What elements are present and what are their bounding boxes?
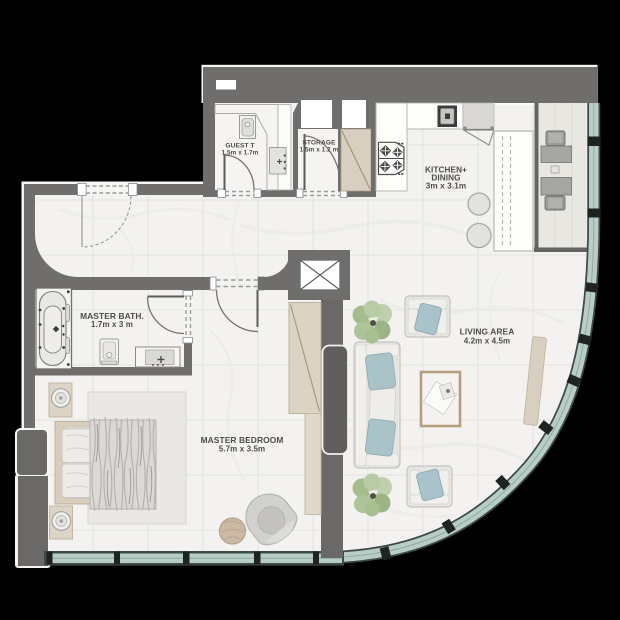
svg-text:LIVING AREA: LIVING AREA	[460, 327, 515, 337]
svg-text:STORAGE: STORAGE	[302, 140, 336, 147]
svg-text:MASTER BEDROOM: MASTER BEDROOM	[201, 435, 284, 445]
svg-text:5.7m x 3.5m: 5.7m x 3.5m	[219, 445, 265, 454]
svg-text:GUEST T: GUEST T	[225, 143, 254, 150]
svg-text:1.5m x 1.7m: 1.5m x 1.7m	[222, 150, 259, 157]
svg-text:4.2m x 4.5m: 4.2m x 4.5m	[464, 337, 510, 346]
svg-text:1.5m x 1.2 m: 1.5m x 1.2 m	[300, 147, 339, 154]
svg-text:1.7m x 3 m: 1.7m x 3 m	[91, 320, 133, 329]
svg-text:3m x 3.1m: 3m x 3.1m	[426, 182, 467, 191]
